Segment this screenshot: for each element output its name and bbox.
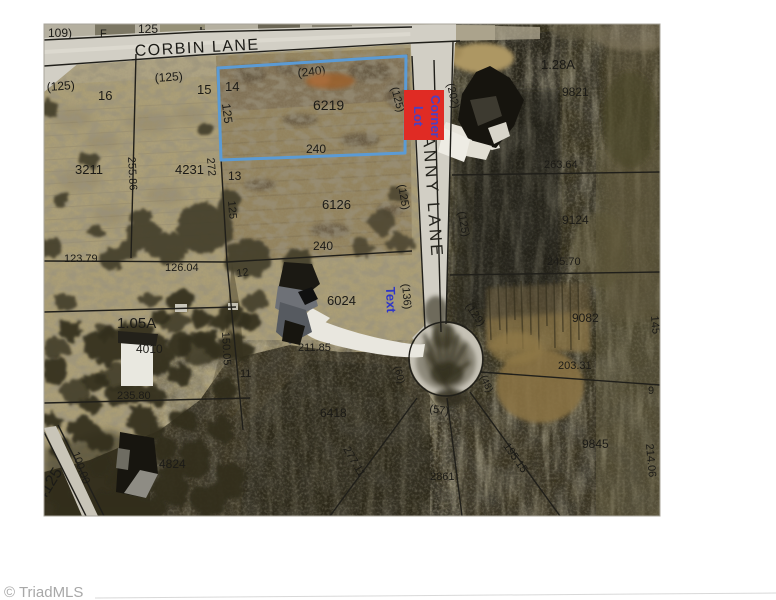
svg-text:4824: 4824: [159, 457, 186, 471]
svg-text:240: 240: [313, 239, 333, 253]
svg-text:4231: 4231: [175, 162, 204, 177]
svg-text:9082: 9082: [572, 311, 599, 325]
svg-text:125: 125: [219, 103, 235, 125]
svg-text:(136): (136): [399, 283, 413, 310]
svg-text:1.28A: 1.28A: [541, 57, 575, 72]
svg-text:F: F: [100, 28, 107, 40]
svg-text:235.80: 235.80: [117, 390, 151, 402]
svg-text:255.86: 255.86: [125, 157, 139, 191]
svg-text:245.70: 245.70: [547, 256, 581, 268]
svg-text:(125): (125): [46, 78, 75, 94]
svg-text:Lot: Lot: [411, 106, 426, 127]
svg-text:240: 240: [306, 142, 326, 156]
svg-text:14: 14: [225, 79, 239, 94]
svg-text:211.85: 211.85: [298, 342, 331, 354]
svg-text:272: 272: [204, 157, 218, 176]
svg-text:203.31: 203.31: [558, 360, 592, 372]
svg-text:6418: 6418: [320, 406, 347, 420]
svg-text:1.05A: 1.05A: [117, 315, 156, 332]
svg-text:6219: 6219: [313, 97, 344, 113]
svg-text:150.05: 150.05: [219, 332, 233, 366]
svg-text:123.79: 123.79: [64, 253, 98, 265]
svg-text:125: 125: [225, 200, 239, 219]
svg-text:9845: 9845: [582, 437, 609, 451]
svg-text:Corner: Corner: [428, 95, 443, 138]
svg-text:15: 15: [197, 82, 211, 97]
svg-text:(125): (125): [154, 69, 183, 85]
svg-text:2861: 2861: [430, 471, 454, 483]
svg-text:9: 9: [648, 385, 654, 397]
svg-text:6126: 6126: [322, 197, 351, 212]
svg-text:16: 16: [98, 88, 112, 103]
svg-text:13: 13: [228, 169, 242, 183]
svg-text:9124: 9124: [562, 213, 589, 227]
svg-text:11: 11: [240, 368, 251, 380]
svg-text:109): 109): [48, 26, 72, 40]
svg-text:© TriadMLS: © TriadMLS: [4, 584, 83, 600]
svg-text:6024: 6024: [327, 293, 356, 308]
svg-text:4010: 4010: [136, 342, 163, 356]
svg-text:12: 12: [236, 266, 250, 280]
svg-text:263.64: 263.64: [544, 159, 578, 171]
svg-text:126.04: 126.04: [165, 262, 199, 274]
svg-text:Text: Text: [383, 287, 399, 314]
svg-text:3211: 3211: [75, 162, 103, 177]
svg-text:9821: 9821: [562, 85, 589, 99]
